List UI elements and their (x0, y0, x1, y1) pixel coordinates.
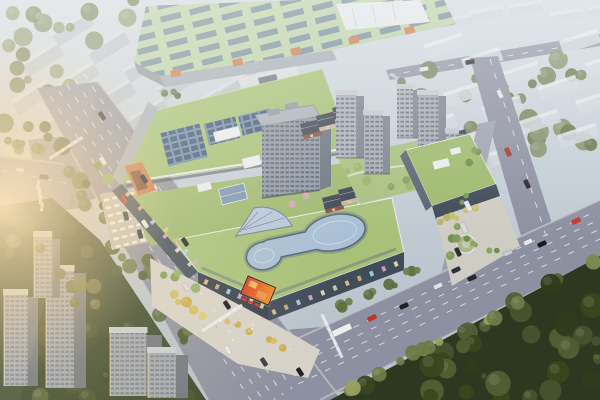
atmosphere-overlays (0, 0, 600, 400)
aerial-rendering-frame (0, 0, 600, 400)
warm-corner-glow (0, 0, 600, 400)
aerial-rendering (0, 0, 600, 400)
